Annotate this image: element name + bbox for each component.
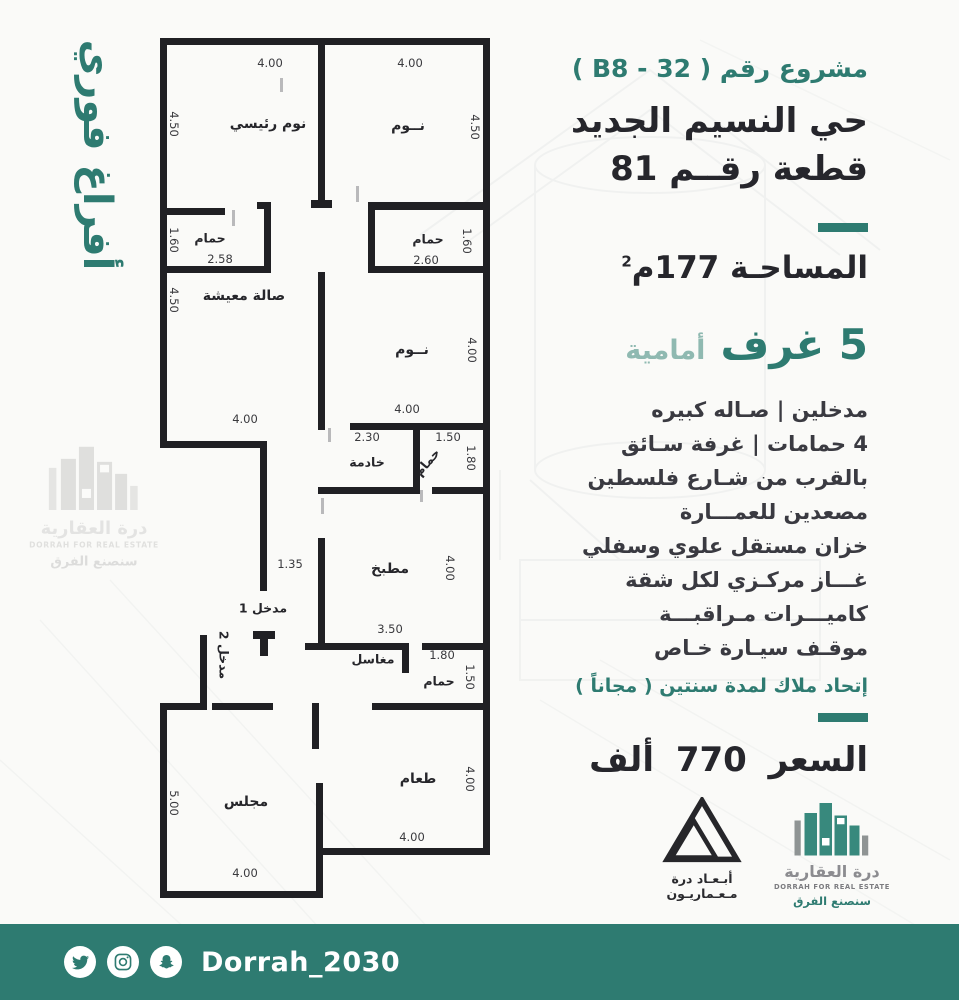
- dorrah-buildings-icon: [792, 800, 872, 856]
- room-label: مدخل 2: [217, 631, 232, 679]
- dimension-label: 4.00: [397, 56, 423, 70]
- dorrah-slogan: سنصنع الفرق: [762, 894, 902, 908]
- plot-number: قطعة رقــم 81: [556, 149, 868, 189]
- room-label: صالة معيشة: [203, 288, 285, 304]
- dorrah-name: درة العقارية: [16, 517, 173, 538]
- dorrah-logo: درة العقارية DORRAH FOR REAL ESTATE سنصن…: [762, 800, 902, 908]
- floorplan-labels: نوم رئيسينــومحمامحمامصالة معيشةنــومخاد…: [160, 38, 490, 898]
- abaad-triangle-icon: [659, 797, 745, 863]
- dimension-label: 3.50: [377, 622, 403, 636]
- floor-plan: نوم رئيسينــومحمامحمامصالة معيشةنــومخاد…: [160, 38, 490, 898]
- dimension-label: 1.60: [167, 227, 181, 253]
- dimension-label: 4.00: [257, 56, 283, 70]
- area-superscript: 2: [621, 253, 631, 271]
- room-label: نوم رئيسي: [230, 116, 307, 132]
- feature-line: خزان مستقل علوي وسفلي: [556, 529, 868, 563]
- room-label: مجلس: [224, 794, 268, 810]
- abaad-architects-logo: أبـعـاد درة مـعـماريـون: [652, 797, 752, 901]
- dorrah-name-en: DORRAH FOR REAL ESTATE: [762, 883, 902, 891]
- dimension-label: 2.58: [207, 252, 233, 266]
- dimension-label: 4.00: [463, 766, 477, 792]
- dimension-label: 4.00: [232, 412, 258, 426]
- district-title: حي النسيم الجديد: [556, 101, 868, 141]
- dimension-label: 4.50: [167, 287, 181, 313]
- divider-bar: [818, 713, 868, 722]
- feature-line: 4 حمامات | غرفة سـائق: [556, 427, 868, 461]
- rooms-line: 5 غرف أمامية: [556, 320, 868, 369]
- divider-bar: [818, 223, 868, 232]
- feature-line: كاميـــرات مـراقبـــة: [556, 597, 868, 631]
- dimension-label: 2.60: [413, 253, 439, 267]
- rooms-suffix: أمامية: [625, 335, 705, 366]
- dimension-label: 2.30: [354, 430, 380, 444]
- twitter-icon[interactable]: [64, 946, 96, 978]
- dorrah-name: درة العقارية: [762, 862, 902, 881]
- feature-line: بالقرب من شـارع فلسطين: [556, 461, 868, 495]
- room-label: خادمة: [349, 455, 384, 470]
- abaad-logo-line2: مـعـماريـون: [652, 886, 752, 901]
- features-list: مدخلين | صـاله كبيره4 حمامات | غرفة سـائ…: [556, 393, 868, 665]
- dimension-label: 4.50: [167, 111, 181, 137]
- rooms-count: 5 غرف: [721, 320, 868, 369]
- social-handle: Dorrah_2030: [201, 947, 400, 978]
- feature-line: غـــاز مركـزي لكل شقة: [556, 563, 868, 597]
- instagram-icon[interactable]: [107, 946, 139, 978]
- dorrah-slogan: سنصنع الفرق: [16, 553, 173, 569]
- dimension-label: 1.50: [463, 664, 477, 690]
- dimension-label: 1.60: [460, 228, 474, 254]
- dimension-label: 4.00: [394, 402, 420, 416]
- feature-line: مصعدين للعمـــارة: [556, 495, 868, 529]
- feature-line: مدخلين | صـاله كبيره: [556, 393, 868, 427]
- room-label: حمام: [411, 445, 443, 479]
- room-label: حمام: [423, 674, 454, 689]
- dimension-label: 4.00: [465, 337, 479, 363]
- info-panel: مشروع رقم ( B8 - 32 ) حي النسيم الجديد ق…: [556, 40, 868, 780]
- dimension-label: 1.35: [277, 557, 303, 571]
- room-label: حمام: [412, 232, 443, 247]
- flyer: أفراغ فوري درة العقارية DORRAH FOR REAL …: [0, 0, 959, 1000]
- area-text: المساحـة 177م: [632, 250, 868, 286]
- room-label: مطبخ: [371, 561, 409, 577]
- dimension-label: 4.00: [232, 866, 258, 880]
- dimension-label: 4.00: [399, 830, 425, 844]
- footer-bar: Dorrah_2030: [0, 924, 959, 1000]
- room-label: طعام: [400, 771, 437, 787]
- dorrah-name-en: DORRAH FOR REAL ESTATE: [16, 541, 173, 550]
- room-label: مغاسل: [352, 652, 395, 667]
- dimension-label: 1.80: [464, 445, 478, 471]
- area-line: المساحـة 177م2: [556, 250, 868, 286]
- immediate-vacancy-banner: أفراغ فوري: [50, 22, 120, 288]
- room-label: حمام: [194, 231, 225, 246]
- dorrah-buildings-icon: [46, 443, 142, 510]
- room-label: نــوم: [395, 342, 429, 358]
- dimension-label: 5.00: [167, 790, 181, 816]
- dorrah-watermark-logo: درة العقارية DORRAH FOR REAL ESTATE سنصن…: [16, 443, 173, 568]
- abaad-logo-line1: أبـعـاد درة: [652, 871, 752, 886]
- snapchat-icon[interactable]: [150, 946, 182, 978]
- feature-line: موقـف سيـارة خـاص: [556, 631, 868, 665]
- dimension-label: 1.50: [435, 430, 461, 444]
- project-number: مشروع رقم ( B8 - 32 ): [556, 54, 868, 83]
- price-line: السعر 770 ألف: [556, 740, 868, 780]
- dimension-label: 1.80: [429, 648, 455, 662]
- owners-union-note: إتحاد ملاك لمدة سنتين ( مجاناً ): [556, 675, 868, 697]
- dimension-label: 4.50: [468, 114, 482, 140]
- room-label: مدخل 1: [239, 601, 287, 616]
- room-label: نــوم: [391, 118, 425, 134]
- dimension-label: 4.00: [443, 555, 457, 581]
